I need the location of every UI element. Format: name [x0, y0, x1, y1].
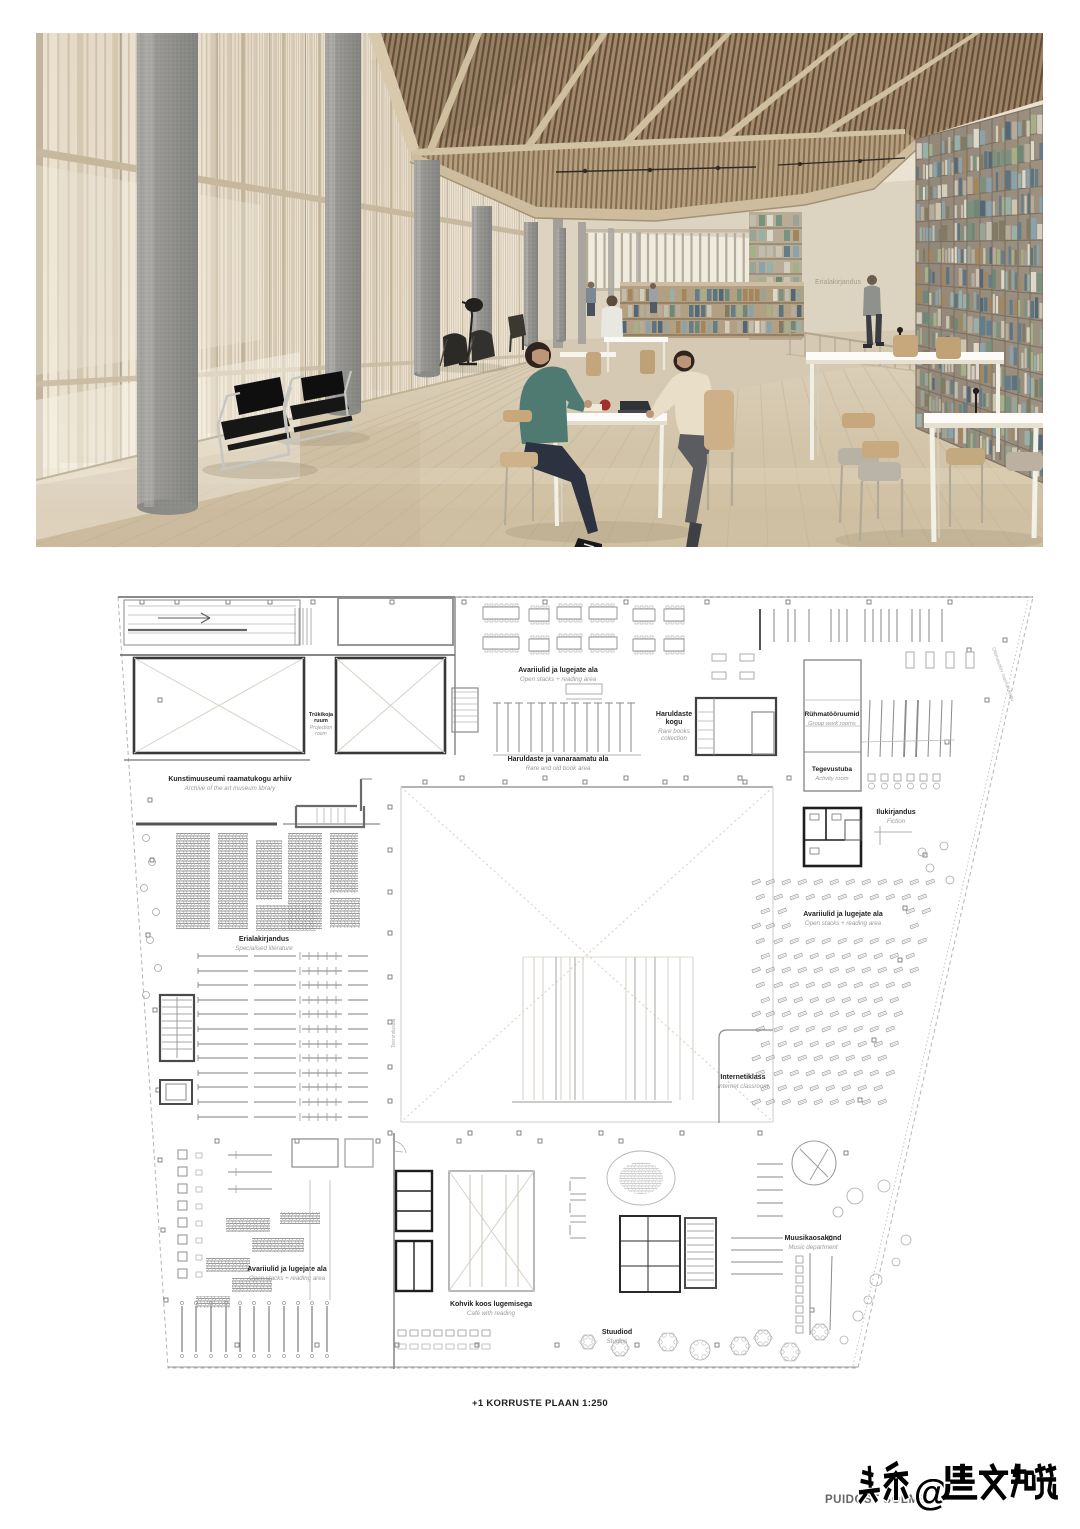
svg-text:room: room: [315, 731, 326, 737]
svg-text:Group work rooms: Group work rooms: [808, 721, 856, 727]
svg-text:Erialakirjandus: Erialakirjandus: [815, 279, 861, 286]
svg-text:kogu: kogu: [666, 719, 683, 726]
svg-text:ruum: ruum: [314, 718, 328, 724]
svg-text:Internet classroom: Internet classroom: [718, 1083, 769, 1090]
svg-text:Café with reading: Café with reading: [467, 1310, 516, 1317]
svg-text:Music department: Music department: [788, 1244, 837, 1251]
svg-text:Tegevustuba: Tegevustuba: [812, 766, 853, 773]
svg-text:Open stacks + reading area: Open stacks + reading area: [805, 920, 882, 927]
svg-text:Rühmatööruumid: Rühmatööruumid: [805, 711, 860, 718]
svg-text:Open stacks + reading area: Open stacks + reading area: [520, 676, 597, 683]
svg-text:Rare books: Rare books: [658, 728, 690, 735]
svg-text:Ilukirjandus: Ilukirjandus: [876, 809, 915, 816]
svg-text:Erialakirjandus: Erialakirjandus: [239, 936, 289, 943]
svg-text:Avariiulid ja lugejate ala: Avariiulid ja lugejate ala: [518, 667, 598, 674]
svg-text:Open stacks + reading area: Open stacks + reading area: [249, 1275, 326, 1282]
svg-text:Haruldaste ja vanaraamatu ala: Haruldaste ja vanaraamatu ala: [508, 756, 609, 763]
svg-text:Internetiklass: Internetiklass: [720, 1074, 765, 1081]
svg-text:Avariiulid ja lugejate ala: Avariiulid ja lugejate ala: [803, 911, 883, 918]
svg-text:Haruldaste: Haruldaste: [656, 711, 692, 718]
svg-text:collection: collection: [661, 735, 687, 742]
svg-text:Kunstimuuseumi raamatukogu arh: Kunstimuuseumi raamatukogu arhiiv: [168, 776, 291, 783]
svg-text:Stuudiod: Stuudiod: [602, 1329, 632, 1336]
svg-text:Specialised literature: Specialised literature: [235, 945, 293, 952]
svg-text:Muusikaosakond: Muusikaosakond: [785, 1235, 842, 1242]
svg-text:Archive of the art museum libr: Archive of the art museum library: [184, 785, 277, 792]
svg-text:Kohvik koos lugemisega: Kohvik koos lugemisega: [450, 1301, 532, 1308]
svg-text:Rare and old book area: Rare and old book area: [526, 765, 591, 772]
svg-text:Avariiulid ja lugejate ala: Avariiulid ja lugejate ala: [247, 1266, 327, 1273]
svg-text:Fiction: Fiction: [887, 818, 906, 825]
svg-text:Activity room: Activity room: [814, 776, 848, 782]
svg-text:Teenindusala: Teenindusala: [391, 1018, 397, 1048]
